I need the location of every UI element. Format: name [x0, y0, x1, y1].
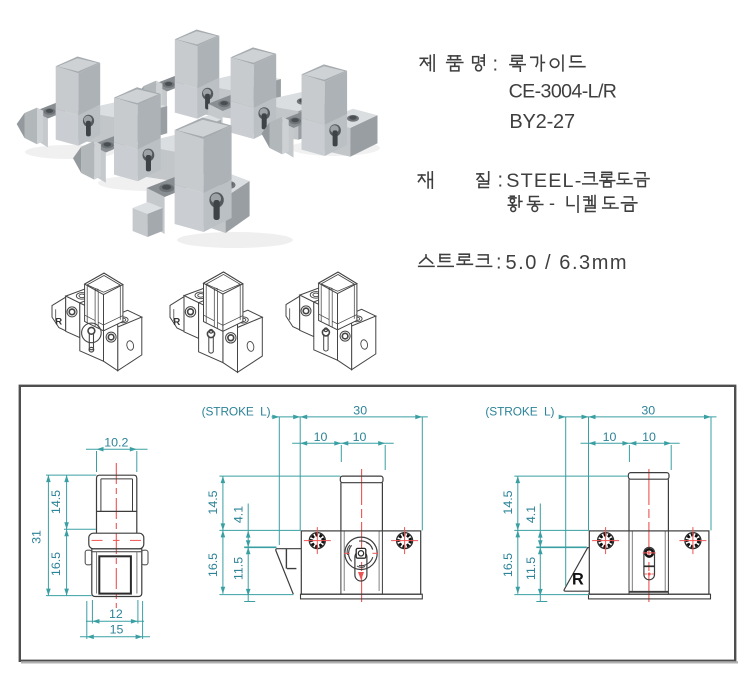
svg-text:CE-3004-L/R: CE-3004-L/R — [509, 81, 617, 103]
svg-text:16.5: 16.5 — [206, 553, 220, 577]
svg-text:15: 15 — [110, 623, 124, 637]
svg-text:10: 10 — [314, 430, 328, 444]
svg-text:R: R — [55, 317, 62, 328]
svg-text:-: - — [549, 193, 555, 213]
svg-text:4.1: 4.1 — [232, 506, 246, 523]
svg-text::: : — [498, 170, 504, 192]
svg-text:10.2: 10.2 — [104, 435, 128, 449]
svg-text:12: 12 — [109, 607, 123, 621]
svg-text:10: 10 — [642, 430, 656, 444]
svg-text:31: 31 — [29, 530, 43, 544]
svg-text:14.5: 14.5 — [206, 490, 220, 514]
svg-text:30: 30 — [353, 404, 367, 418]
svg-text:16.5: 16.5 — [501, 553, 515, 577]
svg-text:R: R — [572, 571, 584, 589]
svg-text:4.1: 4.1 — [524, 506, 538, 523]
svg-text:14.5: 14.5 — [501, 490, 515, 514]
svg-text:R: R — [173, 317, 180, 328]
svg-text:(STROKE L): (STROKE L) — [485, 404, 554, 418]
svg-text::: : — [493, 54, 499, 76]
svg-text:30: 30 — [641, 404, 655, 418]
svg-text:11.5: 11.5 — [524, 557, 538, 580]
svg-text:10: 10 — [353, 430, 367, 444]
svg-text:5.0 / 6.3mm: 5.0 / 6.3mm — [506, 252, 629, 274]
svg-text::: : — [496, 252, 502, 274]
svg-text:10: 10 — [603, 430, 617, 444]
svg-text:16.5: 16.5 — [49, 552, 63, 576]
svg-text:(STROKE L): (STROKE L) — [202, 404, 271, 418]
svg-text:STEEL-: STEEL- — [506, 170, 582, 192]
svg-text:14.5: 14.5 — [49, 490, 63, 514]
svg-text:11.5: 11.5 — [232, 557, 246, 580]
svg-text:BY2-27: BY2-27 — [509, 111, 575, 133]
